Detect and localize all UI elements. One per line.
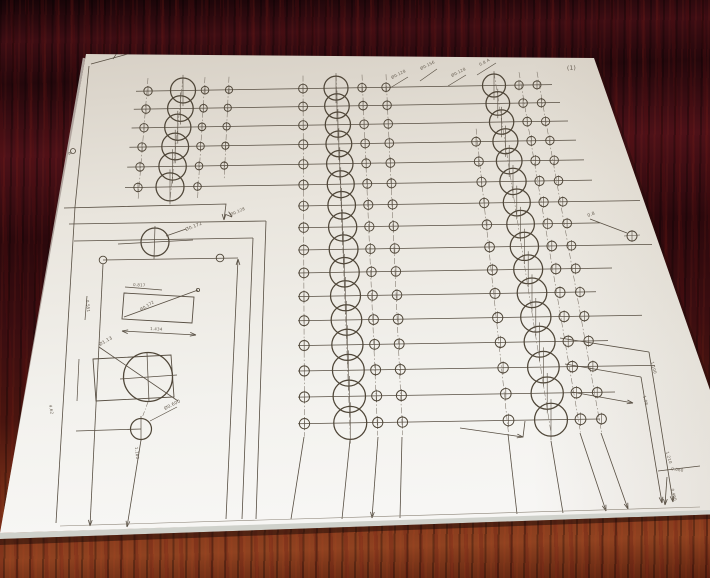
dimension-label: 0.817 (133, 282, 146, 288)
paper-sheet-shading (0, 54, 710, 533)
photo-technical-drawing-on-table: (1) B Ø0.128 Ø0.156 Ø0.128 0.8 A 0.8 Ø0.… (0, 0, 710, 578)
tick-mark (146, 46, 150, 52)
blueprint-paper-photo: (1) B Ø0.128 Ø0.156 Ø0.128 0.8 A 0.8 Ø0.… (0, 0, 710, 578)
dimension-label: 1.434 (150, 326, 163, 332)
page-number-mark: (1) (567, 65, 576, 72)
